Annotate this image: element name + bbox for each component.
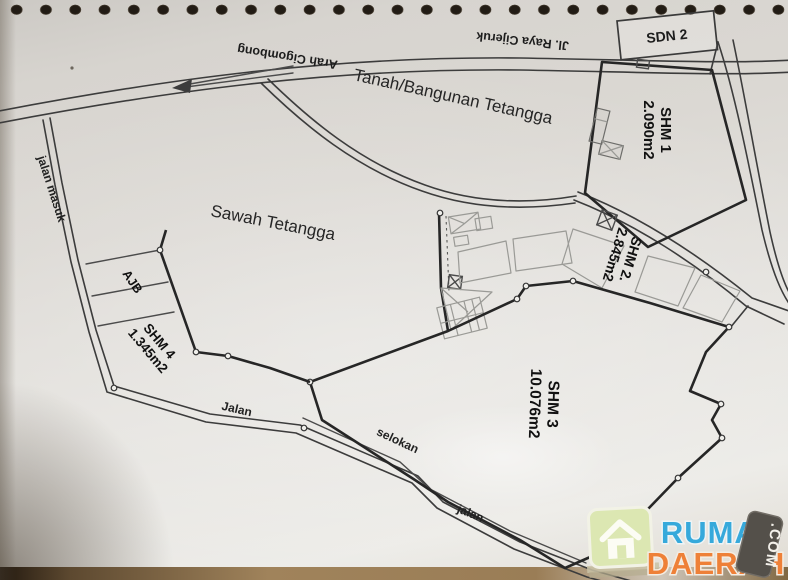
ajb-bottom-edge bbox=[98, 312, 174, 326]
parcel-shm1-label: SHM 1 2.090m2 bbox=[640, 100, 674, 159]
house-door bbox=[617, 545, 627, 558]
east-road-line2 bbox=[733, 40, 788, 300]
site-plan-photo: SDN 2 bbox=[0, 0, 788, 580]
vertex bbox=[225, 353, 231, 359]
building-rect bbox=[589, 108, 610, 144]
ajb-top-edge bbox=[86, 250, 160, 264]
arrow-shaft bbox=[186, 66, 293, 87]
ditch-label: selokan bbox=[374, 425, 420, 457]
access-and-south-road bbox=[43, 118, 642, 580]
ajb-label: AJB bbox=[120, 267, 146, 296]
parcel-id: SHM 1 bbox=[657, 107, 674, 153]
vertex bbox=[523, 283, 529, 289]
east-road-line1 bbox=[718, 42, 788, 310]
vertex bbox=[193, 349, 199, 355]
parcel-area: 10.076m2 bbox=[525, 368, 544, 438]
vertex bbox=[726, 324, 732, 330]
map-labels: Jl. Raya Cijeruk Arah Cigombong Tanah/Ba… bbox=[34, 29, 674, 525]
house-plan-icon bbox=[448, 210, 494, 246]
vertex bbox=[719, 435, 725, 441]
parcel-shm4 bbox=[86, 230, 310, 431]
curve-lower bbox=[261, 83, 575, 207]
building-icon bbox=[589, 108, 610, 144]
house-wing bbox=[475, 216, 493, 230]
parcel-shm2 bbox=[437, 210, 740, 339]
vertex bbox=[111, 385, 117, 391]
logo-house-tile bbox=[588, 507, 653, 568]
school-block: SDN 2 bbox=[617, 11, 718, 60]
neighbor-field-label: Sawah Tetangga bbox=[209, 201, 337, 244]
site-plan-map: SDN 2 bbox=[0, 0, 788, 580]
watermark-logo: RUMAH DAERAH .COM bbox=[584, 506, 788, 580]
south-road-label: jalan bbox=[454, 501, 486, 525]
vertex bbox=[437, 210, 443, 216]
parcel-area: 2.090m2 bbox=[640, 100, 657, 159]
ink-speck bbox=[70, 66, 73, 69]
vertex bbox=[718, 401, 724, 407]
house-shed bbox=[454, 235, 469, 246]
sub-parcel bbox=[635, 256, 695, 306]
fork-to-corner bbox=[730, 306, 748, 328]
vertex bbox=[514, 296, 520, 302]
parcel-shm4-label: SHM 4 1.345m2 bbox=[125, 316, 182, 376]
vertex bbox=[157, 247, 163, 253]
parcel-shm3-label: SHM 3 10.076m2 bbox=[525, 368, 562, 439]
vertex bbox=[301, 425, 307, 431]
east-road bbox=[710, 40, 788, 310]
main-road-label: Jl. Raya Cijeruk bbox=[476, 29, 570, 53]
neighbor-land-label: Tanah/Bangunan Tetangga bbox=[352, 65, 555, 128]
vertex bbox=[570, 278, 576, 284]
building-icon bbox=[599, 141, 624, 160]
parcel-id: SHM 3 bbox=[543, 380, 562, 428]
vertex bbox=[675, 475, 681, 481]
road-vertex bbox=[703, 269, 709, 275]
road-line-b bbox=[43, 120, 634, 580]
ditch-line bbox=[303, 418, 586, 563]
parcel-shm4-east-boundary bbox=[160, 230, 310, 382]
sub-parcel bbox=[458, 241, 511, 283]
